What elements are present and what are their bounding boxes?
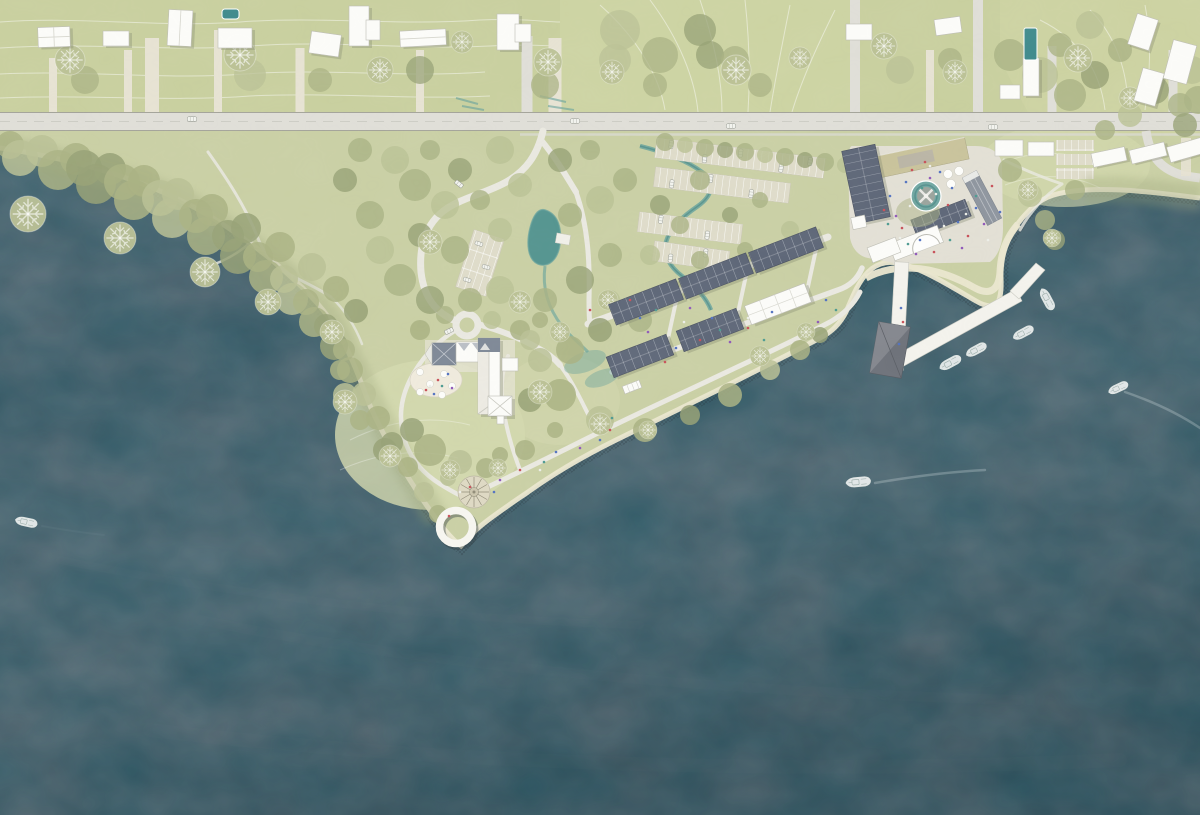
paper-grain [0,0,1200,815]
site-plan-canvas [0,0,1200,815]
masterplan-svg [0,0,1200,815]
